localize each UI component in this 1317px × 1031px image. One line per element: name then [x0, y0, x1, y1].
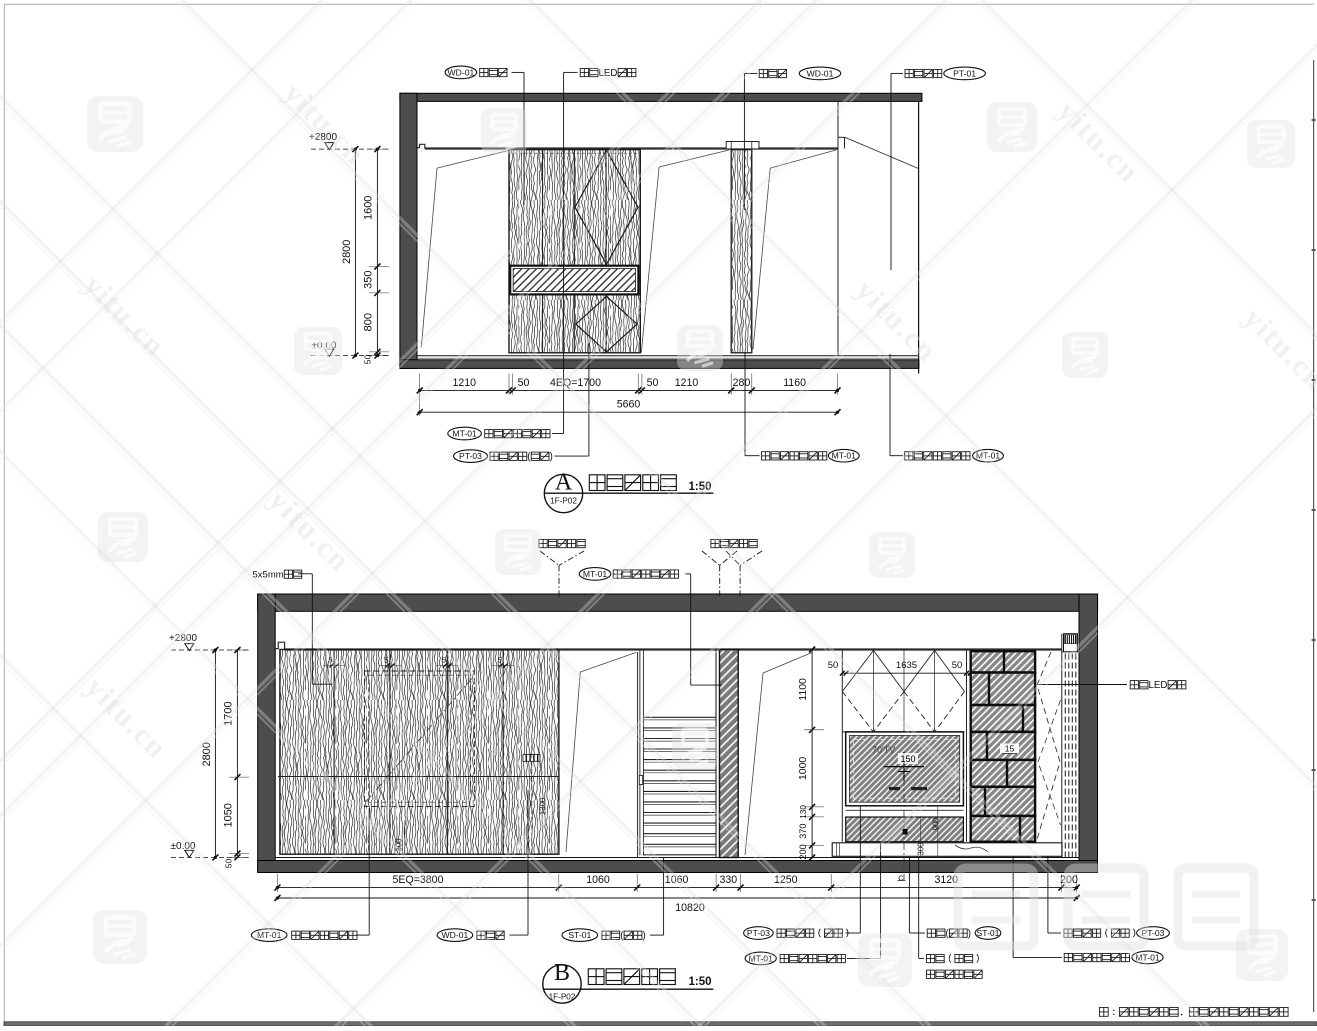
svg-text:50: 50 — [223, 859, 233, 869]
svg-text:LED: LED — [1149, 680, 1168, 691]
svg-text:350: 350 — [362, 271, 374, 289]
svg-text:): ) — [550, 452, 553, 463]
svg-text:WD-01: WD-01 — [807, 68, 834, 78]
svg-text:B: B — [554, 960, 570, 986]
svg-text:yitu.cn: yitu.cn — [262, 484, 357, 579]
svg-text:yitu.cn: yitu.cn — [77, 269, 172, 364]
svg-text:1050: 1050 — [222, 803, 234, 827]
svg-text:MT-01: MT-01 — [452, 428, 477, 438]
svg-text:ST-01: ST-01 — [568, 930, 591, 940]
svg-text:yitu.cn: yitu.cn — [849, 274, 944, 369]
svg-text:C: C — [898, 874, 904, 883]
svg-text:yitu.cn: yitu.cn — [79, 671, 174, 766]
svg-text:1060: 1060 — [586, 874, 610, 886]
svg-text:MT-01: MT-01 — [832, 451, 857, 461]
svg-text:280: 280 — [733, 377, 751, 389]
svg-text:5x5mm: 5x5mm — [253, 570, 284, 581]
svg-text:50: 50 — [518, 377, 530, 389]
svg-text:5: 5 — [498, 656, 502, 665]
svg-text:50: 50 — [363, 355, 373, 365]
svg-text:300: 300 — [917, 842, 926, 856]
svg-text:PT-03: PT-03 — [459, 451, 482, 461]
svg-text:MT-01: MT-01 — [583, 569, 608, 579]
svg-text:1F-P02: 1F-P02 — [550, 497, 577, 506]
svg-text:1:50: 1:50 — [689, 976, 712, 988]
svg-text:130: 130 — [799, 805, 808, 819]
svg-text:5: 5 — [384, 656, 388, 665]
svg-text:WD-01: WD-01 — [442, 930, 469, 940]
svg-text:yitu.cn: yitu.cn — [1051, 95, 1146, 190]
svg-text:70′TV: 70′TV — [872, 745, 895, 755]
svg-text:(: ( — [946, 929, 950, 940]
svg-text:330: 330 — [719, 874, 737, 886]
svg-text:50: 50 — [647, 377, 659, 389]
svg-text:WD-01: WD-01 — [448, 67, 475, 77]
svg-text:1300: 1300 — [539, 797, 548, 815]
svg-text:PT-03: PT-03 — [747, 928, 770, 938]
svg-text:150: 150 — [900, 754, 915, 764]
svg-text:5: 5 — [442, 656, 446, 665]
svg-text:(: ( — [527, 452, 531, 463]
svg-text:1000: 1000 — [797, 757, 809, 781]
svg-text:PT-01: PT-01 — [953, 68, 976, 78]
svg-text:): ) — [968, 929, 971, 940]
svg-text:1210: 1210 — [675, 377, 699, 389]
svg-text:50: 50 — [952, 660, 963, 671]
svg-text:2800: 2800 — [341, 240, 353, 264]
svg-text:A: A — [555, 470, 573, 496]
svg-text:yitu.cn: yitu.cn — [1237, 302, 1317, 397]
svg-text:1210: 1210 — [453, 377, 477, 389]
svg-text:1635: 1635 — [896, 660, 917, 671]
svg-text:15: 15 — [1005, 744, 1015, 754]
svg-text:1100: 1100 — [797, 678, 809, 701]
svg-text:800: 800 — [362, 313, 374, 331]
svg-text:370: 370 — [798, 824, 808, 839]
svg-text:ST-01: ST-01 — [977, 928, 1000, 938]
svg-text:1F-P02: 1F-P02 — [549, 993, 576, 1002]
svg-text:900: 900 — [932, 817, 941, 831]
svg-text:): ) — [643, 931, 646, 942]
svg-text:1600: 1600 — [362, 196, 374, 220]
svg-text:5660: 5660 — [617, 399, 641, 411]
svg-text:(: ( — [620, 931, 624, 942]
